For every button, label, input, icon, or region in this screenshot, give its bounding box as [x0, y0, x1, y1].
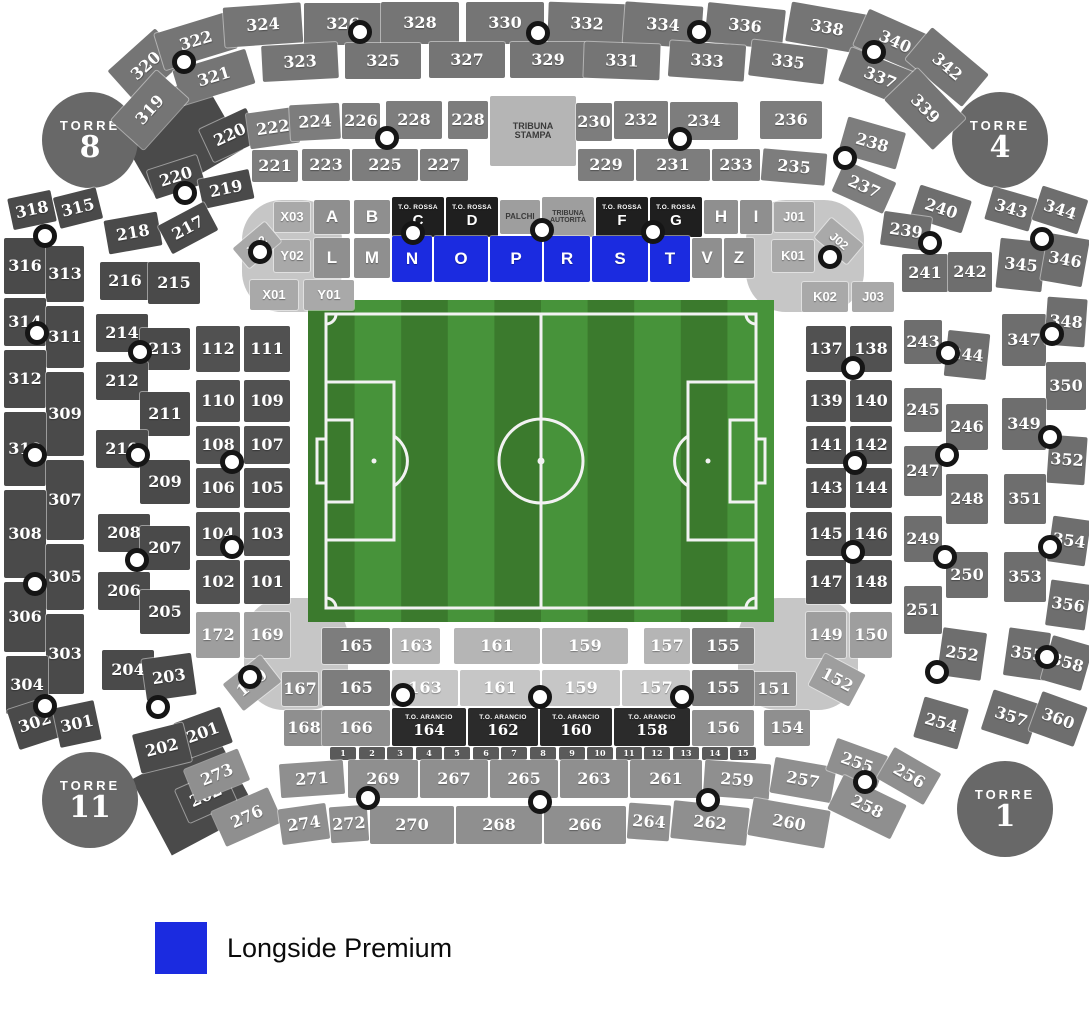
section-label: 217: [169, 213, 206, 244]
section-label: J01: [783, 210, 805, 224]
section-235: 235: [761, 148, 828, 185]
section-145: 145: [806, 512, 846, 556]
gate-dot: [1040, 322, 1064, 346]
section-140: 140: [850, 380, 892, 422]
section-139: 139: [806, 380, 846, 422]
section-j03: J03: [852, 282, 894, 312]
section-313: 313: [46, 246, 84, 302]
section-327: 327: [429, 42, 505, 78]
section-label: 164: [413, 723, 444, 739]
section-label: 305: [48, 569, 81, 586]
section-label: 270: [395, 817, 428, 834]
section-label: K02: [813, 290, 837, 304]
section-label: N: [406, 250, 418, 268]
section-label: 353: [1008, 569, 1041, 586]
section-325: 325: [345, 43, 421, 79]
gate-dot: [833, 146, 857, 170]
gate-dot: [841, 356, 865, 380]
section-label: 331: [605, 52, 639, 70]
gate-dot: [1038, 425, 1062, 449]
section-102: 102: [196, 560, 240, 604]
section-label: 334: [646, 15, 680, 34]
section-label: O: [454, 250, 467, 268]
section-label: 332: [570, 15, 604, 33]
section-307: 307: [46, 460, 84, 540]
section-label: 272: [332, 814, 366, 833]
section-label: 1: [340, 749, 346, 757]
section-label: 7: [511, 749, 517, 757]
section-12: 12: [644, 747, 670, 760]
section-label: 101: [250, 574, 283, 591]
section-label: 9: [569, 749, 575, 757]
tower-1: TORRE1: [957, 761, 1053, 857]
section-label-line: TRIBUNA: [552, 210, 584, 217]
section-229: 229: [578, 149, 634, 181]
section-163: 163: [392, 628, 440, 664]
section-label: 271: [295, 769, 329, 788]
section-label: 147: [809, 574, 842, 591]
section-label: 330: [488, 15, 521, 32]
section-label-line: STAMPA: [515, 131, 552, 140]
section-label: 245: [906, 402, 939, 419]
section-236: 236: [760, 101, 822, 139]
section-label: 350: [1049, 378, 1082, 395]
section-226: 226: [342, 103, 380, 139]
section-1: 1: [330, 747, 356, 760]
section-172: 172: [196, 612, 240, 658]
legend-label: Longside Premium: [227, 933, 452, 964]
section-label: 218: [115, 222, 151, 244]
section-328: 328: [381, 2, 459, 44]
section-323: 323: [261, 42, 339, 82]
section-label: 346: [1047, 249, 1083, 271]
gate-dot: [25, 321, 49, 345]
section-label: 260: [771, 812, 807, 834]
section-347: 347: [1002, 314, 1046, 366]
section-label: S: [614, 250, 625, 268]
section-165: 165: [322, 628, 390, 664]
section-303: 303: [46, 614, 84, 694]
section-label: 103: [250, 526, 283, 543]
section-label: B: [366, 208, 378, 226]
section-label: 213: [148, 341, 181, 358]
section-260: 260: [747, 798, 830, 849]
gate-dot: [23, 572, 47, 596]
section-label: 249: [906, 531, 939, 548]
section-156: 156: [692, 710, 754, 746]
section-label: 237: [845, 173, 882, 202]
section-label: 233: [719, 157, 752, 174]
tower-4: TORRE4: [952, 92, 1048, 188]
section-label: 335: [770, 52, 805, 73]
section-z: Z: [724, 238, 754, 278]
section-label: 242: [953, 264, 986, 281]
section-356: 356: [1045, 579, 1089, 630]
section-label: 148: [854, 574, 887, 591]
section-label: 336: [728, 16, 763, 36]
section-label: 301: [59, 712, 95, 735]
section-label: 241: [908, 265, 941, 282]
section-205: 205: [140, 590, 190, 634]
gate-dot: [33, 224, 57, 248]
section-263: 263: [560, 760, 628, 798]
section-label: 306: [8, 609, 41, 626]
section-label: R: [561, 250, 573, 268]
section-274: 274: [278, 803, 331, 845]
section-label: 303: [48, 646, 81, 663]
section-label: 110: [201, 393, 234, 410]
section-166: 166: [322, 710, 390, 746]
section-label: 169: [250, 627, 283, 644]
section-label: 227: [427, 157, 460, 174]
section-d: T.O. ROSSAD: [446, 197, 498, 237]
section-label: 236: [774, 112, 807, 129]
section-label: 329: [531, 52, 564, 69]
section-label: 206: [107, 583, 140, 600]
section-label: 158: [636, 723, 667, 739]
section-271: 271: [279, 760, 345, 798]
section-label: 155: [706, 638, 739, 655]
section-label: 157: [639, 680, 672, 697]
section-246: 246: [946, 404, 988, 450]
section-107: 107: [244, 426, 290, 464]
gate-dot: [401, 221, 425, 245]
section-label: 151: [757, 681, 790, 698]
section-label: 321: [196, 64, 233, 90]
section-label: 339: [907, 91, 942, 127]
section-o[interactable]: O: [434, 236, 488, 282]
section-label: 273: [198, 761, 235, 789]
section-label: 150: [854, 627, 887, 644]
section-218: 218: [103, 212, 162, 255]
section-label: 347: [1007, 332, 1040, 349]
section-351: 351: [1004, 474, 1046, 524]
gate-dot: [841, 540, 865, 564]
section-label: 266: [568, 817, 601, 834]
section-2: 2: [359, 747, 385, 760]
section-label: 224: [298, 113, 332, 132]
section-label: 111: [250, 341, 283, 358]
section-label: 6: [483, 749, 489, 757]
section-label: F: [617, 213, 626, 229]
section-label: 14: [709, 749, 720, 757]
section-label: 323: [283, 53, 317, 72]
section-label: L: [327, 249, 337, 267]
section-264: 264: [627, 803, 671, 842]
section-label: 264: [632, 812, 666, 831]
section-x03: X03: [274, 202, 310, 232]
section-5: 5: [444, 747, 470, 760]
section-label: 154: [770, 720, 803, 737]
section-label: 247: [906, 463, 939, 480]
section-label: 205: [148, 604, 181, 621]
section-label: T: [665, 250, 675, 268]
section-label: M: [365, 249, 379, 267]
section-label: 167: [283, 681, 316, 698]
section-159: 159: [542, 670, 620, 706]
section-sublabel: T.O. ROSSA: [398, 205, 438, 212]
section-8: 8: [530, 747, 556, 760]
section-209: 209: [140, 460, 190, 504]
section-r[interactable]: R: [544, 236, 590, 282]
section-label: X03: [280, 210, 303, 224]
section-label: 356: [1050, 594, 1085, 615]
section-147: 147: [806, 560, 846, 604]
section-s[interactable]: S: [592, 236, 648, 282]
gate-dot: [23, 443, 47, 467]
section-203: 203: [141, 653, 196, 702]
section-223: 223: [302, 149, 350, 181]
section-label: 156: [706, 720, 739, 737]
section-242: 242: [948, 252, 992, 292]
section-label: 8: [540, 749, 546, 757]
section-221: 221: [252, 150, 298, 182]
section-label: 222: [255, 117, 290, 138]
section-l: L: [314, 238, 350, 278]
section-label: 139: [809, 393, 842, 410]
section-label: 262: [693, 813, 728, 833]
section-label: 246: [950, 419, 983, 436]
section-label: 138: [854, 341, 887, 358]
section-353: 353: [1004, 552, 1046, 602]
section-label: 319: [133, 92, 168, 128]
section-label: 204: [111, 662, 144, 679]
section-label: 146: [854, 526, 887, 543]
section-label: 11: [623, 749, 634, 757]
section-label: X01: [262, 288, 285, 302]
section-331: 331: [583, 42, 660, 81]
section-228: 228: [448, 101, 488, 139]
section-k02: K02: [802, 282, 848, 312]
gate-dot: [818, 245, 842, 269]
section-label: 10: [594, 749, 605, 757]
section-label: 219: [208, 177, 244, 200]
section-label: 13: [680, 749, 691, 757]
gate-dot: [862, 40, 886, 64]
section-label: 345: [1004, 255, 1039, 275]
section-sublabel: T.O. ROSSA: [656, 205, 696, 212]
gate-dot: [348, 20, 372, 44]
section-167: 167: [282, 672, 318, 706]
section-i: I: [740, 200, 772, 234]
section-sublabel: T.O. ROSSA: [452, 205, 492, 212]
gate-dot: [356, 786, 380, 810]
gate-dot: [528, 790, 552, 814]
section-label: 228: [451, 112, 484, 129]
section-7: 7: [501, 747, 527, 760]
section-label: 324: [246, 15, 280, 34]
section-101: 101: [244, 560, 290, 604]
section-6: 6: [473, 747, 499, 760]
section-label: 159: [568, 638, 601, 655]
section-label: 212: [105, 373, 138, 390]
gate-dot: [936, 341, 960, 365]
section-225: 225: [352, 149, 418, 181]
section-label: 269: [366, 771, 399, 788]
gate-dot: [375, 126, 399, 150]
section-label: 259: [720, 770, 754, 789]
section-label: 265: [507, 771, 540, 788]
section-label: 137: [809, 341, 842, 358]
section-j01: J01: [774, 202, 814, 232]
section-13: 13: [673, 747, 699, 760]
section-267: 267: [420, 760, 488, 798]
gate-dot: [238, 665, 262, 689]
section-label: 201: [184, 719, 221, 746]
section-158: T.O. ARANCIO158: [614, 708, 690, 746]
section-label: 152: [818, 665, 855, 696]
gate-dot: [528, 685, 552, 709]
section-109: 109: [244, 380, 290, 422]
section-label: 141: [809, 437, 842, 454]
section-label: I: [754, 208, 759, 226]
section-label: 313: [48, 266, 81, 283]
section-315: 315: [53, 187, 103, 229]
section-label: 112: [201, 341, 234, 358]
section-254: 254: [913, 696, 969, 749]
section-label: 216: [108, 273, 141, 290]
section-219: 219: [197, 169, 254, 209]
section-329: 329: [510, 42, 586, 78]
section-label: 343: [993, 196, 1030, 221]
section-label: 342: [929, 50, 965, 84]
section-216: 216: [100, 262, 150, 300]
section-label: 2: [369, 749, 375, 757]
section-155: 155: [692, 670, 754, 706]
section-151: 151: [752, 672, 796, 706]
section-326: 326: [304, 3, 382, 45]
gate-dot: [220, 450, 244, 474]
gate-dot: [918, 231, 942, 255]
section-268: 268: [456, 806, 542, 844]
section-label: 318: [14, 198, 50, 221]
section-label: 229: [589, 157, 622, 174]
gate-dot: [248, 240, 272, 264]
section-label: V: [701, 249, 712, 267]
section-label: 3: [397, 749, 403, 757]
gate-dot: [526, 21, 550, 45]
section-label: 258: [848, 792, 885, 822]
section-m: M: [354, 238, 390, 278]
section-111: 111: [244, 326, 290, 372]
section-149: 149: [806, 612, 846, 658]
gate-dot: [853, 770, 877, 794]
section-label: 109: [250, 393, 283, 410]
tower-number: 4: [990, 133, 1011, 163]
section-label: 351: [1008, 491, 1041, 508]
section-324: 324: [223, 2, 304, 47]
section-245: 245: [904, 388, 942, 432]
section-211: 211: [140, 392, 190, 436]
section-label: K01: [781, 249, 805, 263]
section-label: 15: [737, 749, 748, 757]
section-label: 257: [785, 769, 821, 791]
gate-dot: [668, 127, 692, 151]
section-112: 112: [196, 326, 240, 372]
gate-dot: [1035, 645, 1059, 669]
section-308: 308: [4, 490, 46, 578]
section-label: 268: [482, 817, 515, 834]
section-x01: X01: [250, 280, 298, 310]
pitch: [308, 300, 774, 622]
section-label: 312: [8, 371, 41, 388]
section-h: H: [704, 200, 738, 234]
section-label: 327: [450, 52, 483, 69]
section-label: 160: [560, 723, 591, 739]
gate-dot: [1030, 227, 1054, 251]
section-label: 248: [950, 491, 983, 508]
section-label: 357: [993, 704, 1030, 730]
section-label: 140: [854, 393, 887, 410]
section-label: 225: [368, 157, 401, 174]
section-label: 261: [649, 771, 682, 788]
section-148: 148: [850, 560, 892, 604]
section-label: 230: [577, 114, 610, 131]
section-label: 274: [286, 813, 321, 834]
section-15: 15: [730, 747, 756, 760]
section-label: 165: [339, 638, 372, 655]
section-label: 315: [60, 196, 96, 220]
section-label: 163: [399, 638, 432, 655]
section-261: 261: [630, 760, 702, 798]
section-label: 221: [258, 158, 291, 175]
section-270: 270: [370, 806, 454, 844]
stadium-map: Longside Premium 32032232432632833033233…: [0, 0, 1089, 1032]
legend-swatch: [155, 922, 207, 974]
section-272: 272: [329, 805, 369, 844]
section-311: 311: [46, 306, 84, 368]
section-p[interactable]: P: [490, 236, 542, 282]
tower-number: 8: [80, 133, 101, 163]
section-label: H: [715, 208, 727, 226]
section-label: 344: [1042, 197, 1079, 223]
section-label: 172: [201, 627, 234, 644]
section-label: 349: [1007, 416, 1040, 433]
section-label: 267: [437, 771, 470, 788]
gate-dot: [128, 340, 152, 364]
section-label: 166: [339, 720, 372, 737]
section-333: 333: [668, 40, 746, 81]
section-105: 105: [244, 468, 290, 508]
section-label: 207: [148, 540, 181, 557]
gate-dot: [125, 548, 149, 572]
section-label: 333: [690, 51, 724, 70]
section-360: 360: [1028, 691, 1087, 747]
section-label: 149: [809, 627, 842, 644]
section-241: 241: [902, 254, 948, 292]
section-164: T.O. ARANCIO164: [392, 708, 466, 746]
section-168: 168: [284, 710, 324, 746]
section-label: 238: [854, 130, 891, 155]
gate-dot: [670, 685, 694, 709]
section-162: T.O. ARANCIO162: [468, 708, 538, 746]
gate-dot: [173, 181, 197, 205]
section-9: 9: [559, 747, 585, 760]
section-label: 325: [366, 53, 399, 70]
section-label: 4: [426, 749, 432, 757]
section-266: 266: [544, 806, 626, 844]
section-label: 243: [906, 334, 939, 351]
section-label: 338: [809, 17, 845, 39]
section-label: 276: [228, 803, 265, 832]
section-label: 5: [454, 749, 460, 757]
section-sublabel: T.O. ROSSA: [602, 205, 642, 212]
gate-dot: [925, 660, 949, 684]
gate-dot: [933, 545, 957, 569]
gate-dot: [220, 535, 244, 559]
section-label: 102: [201, 574, 234, 591]
section-257: 257: [769, 757, 836, 803]
